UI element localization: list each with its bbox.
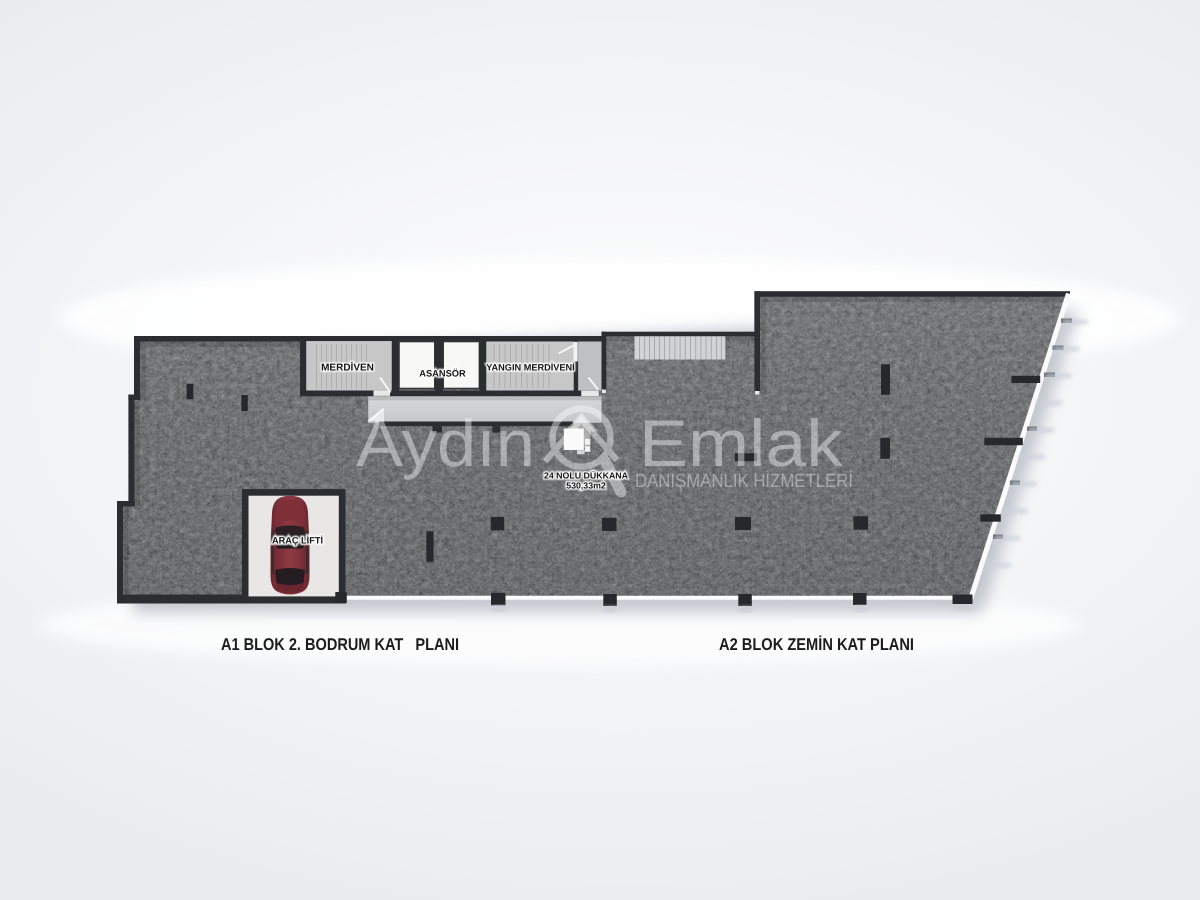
- svg-text:MERDİVEN: MERDİVEN: [321, 362, 374, 374]
- svg-text:Aydın: Aydın: [356, 406, 535, 480]
- svg-text:530,33m2: 530,33m2: [566, 481, 606, 491]
- svg-text:24 NOLU DÜKKANA: 24 NOLU DÜKKANA: [544, 471, 629, 481]
- svg-text:DANIŞMANLIK HİZMETLERİ: DANIŞMANLIK HİZMETLERİ: [635, 470, 853, 492]
- svg-text:YANGIN MERDİVENİ: YANGIN MERDİVENİ: [486, 363, 575, 373]
- svg-text:ARAÇ LİFTİ: ARAÇ LİFTİ: [272, 536, 323, 546]
- svg-text:ASANSÖR: ASANSÖR: [419, 369, 466, 379]
- svg-text:A1 BLOK 2. BODRUM KAT PLANI: A1 BLOK 2. BODRUM KAT PLANI: [221, 635, 459, 654]
- svg-text:Emlak: Emlak: [639, 406, 844, 480]
- svg-text:A2 BLOK ZEMİN KAT PLANI: A2 BLOK ZEMİN KAT PLANI: [719, 635, 914, 654]
